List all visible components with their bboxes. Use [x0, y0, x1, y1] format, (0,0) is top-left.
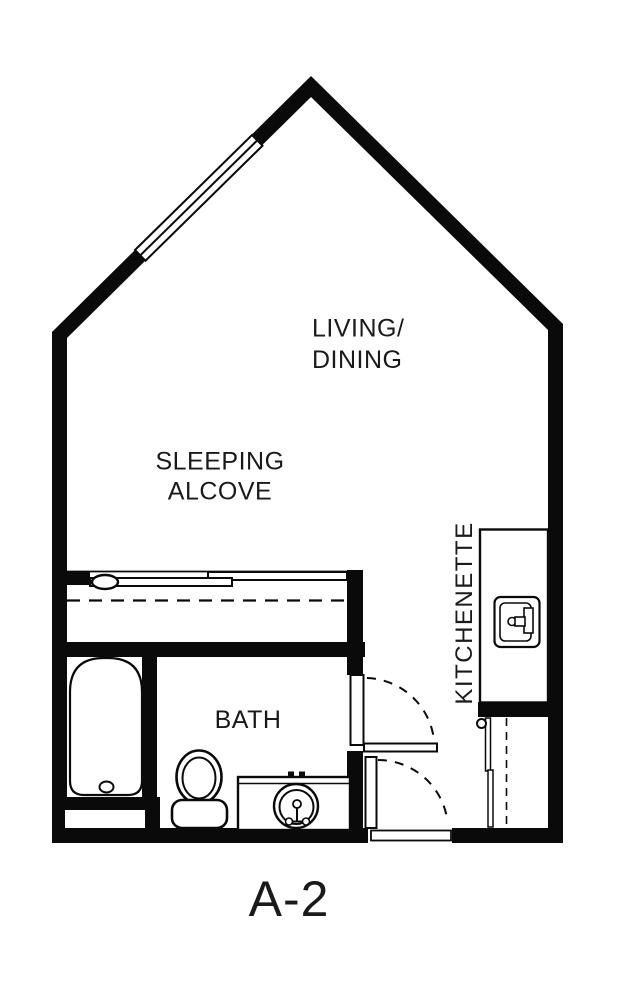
- label-living-line2: DINING: [312, 346, 403, 374]
- label-bath: BATH: [215, 706, 282, 734]
- bath-door-leaf-open: [364, 744, 437, 752]
- label-sleeping-line1: SLEEPING: [155, 448, 284, 476]
- kitchen-counter-icon: [480, 530, 548, 703]
- cabinet-door-hinge: [477, 719, 486, 728]
- closet-left-stub: [67, 571, 90, 585]
- wall-below-counter: [478, 702, 563, 717]
- label-kitchenette: KITCHENETTE: [451, 521, 478, 704]
- vanity-sink-icon: [238, 772, 350, 831]
- bathtub-icon: [70, 658, 142, 795]
- floorplan-drawing: LIVING/ DINING SLEEPING ALCOVE BATH KITC…: [0, 0, 617, 998]
- entry-opening: [368, 828, 452, 843]
- wall-below-sleeping-alcove: [52, 642, 365, 657]
- vanity-handle-right: [299, 772, 305, 777]
- wall-right-of-closet: [347, 570, 363, 675]
- toilet-icon: [172, 751, 227, 829]
- toilet-tank: [172, 800, 227, 828]
- closet-door-handle: [92, 575, 118, 589]
- unit-label: A-2: [249, 871, 330, 927]
- kitchen-faucet-spout: [515, 617, 525, 626]
- label-sleeping-line2: ALCOVE: [168, 478, 272, 506]
- entry-threshold: [371, 831, 451, 841]
- wall-niche: [65, 810, 145, 828]
- floorplan-page: LIVING/ DINING SLEEPING ALCOVE BATH KITC…: [0, 0, 617, 998]
- vanity-handle-left: [288, 772, 294, 777]
- cabinet-door-lower: [488, 770, 493, 827]
- tub-partition-wall: [142, 655, 157, 797]
- entry-door-leaf: [366, 757, 377, 828]
- label-living-line1: LIVING/: [312, 315, 404, 343]
- bath-door-leaf-closed: [351, 675, 364, 745]
